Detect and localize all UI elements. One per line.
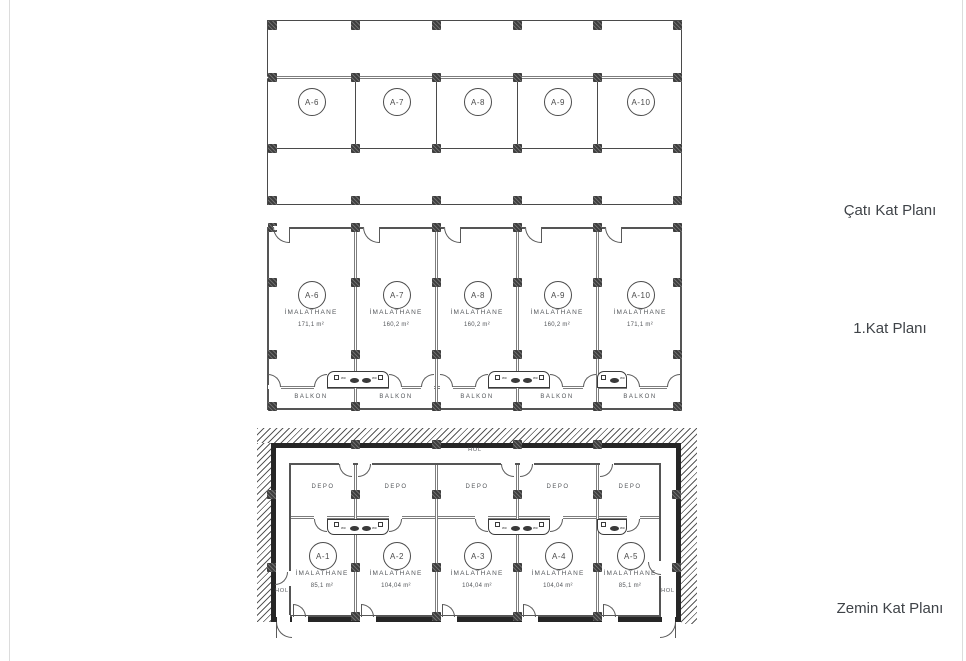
column-marker — [432, 278, 441, 287]
unit-circle: A-6 — [298, 88, 326, 116]
door-opening — [277, 615, 290, 622]
column-marker — [673, 21, 682, 30]
unit-id-label: A-9 — [551, 291, 565, 300]
column-marker — [673, 402, 682, 411]
column-marker — [351, 21, 360, 30]
column-marker — [351, 278, 360, 287]
column-marker — [513, 144, 522, 153]
column-marker — [513, 196, 522, 205]
wc-label: wc — [533, 376, 538, 380]
room-type-label: İMALATHANE — [595, 310, 685, 317]
sink-icon — [539, 375, 544, 380]
wc-label: wc — [620, 376, 625, 380]
hall-label: HOL — [262, 589, 302, 595]
area-label: 104,04 m² — [432, 583, 522, 589]
wc-label: wc — [372, 376, 377, 380]
column-marker — [593, 73, 602, 82]
page-edge-left — [9, 0, 10, 661]
unit-circle: A-7 — [383, 281, 411, 309]
unit-circle: A-10 — [627, 88, 655, 116]
toilet-icon — [362, 378, 371, 383]
balcony-label: BALKON — [595, 394, 685, 400]
door-leaf — [460, 227, 461, 243]
balcony-label: BALKON — [351, 394, 441, 400]
column-marker — [593, 21, 602, 30]
column-marker — [593, 490, 602, 499]
column-marker — [593, 440, 602, 449]
column-marker — [432, 612, 441, 621]
column-marker — [268, 278, 277, 287]
area-label: 171,1 m² — [266, 322, 356, 328]
unit-id-label: A-9 — [551, 98, 565, 107]
room-type-label: İMALATHANE — [266, 310, 356, 317]
hall-label: HOL — [648, 589, 688, 595]
door-leaf — [541, 227, 542, 243]
wc-module: wc wc — [327, 519, 389, 535]
column-marker — [432, 440, 441, 449]
roof-upper-wall — [267, 76, 682, 79]
unit-circle: A-9 — [544, 281, 572, 309]
unit-id-label: A-8 — [471, 291, 485, 300]
balcony-label: BALKON — [512, 394, 602, 400]
wc-label: wc — [341, 376, 346, 380]
column-marker — [593, 144, 602, 153]
column-marker — [513, 612, 522, 621]
sink-icon — [334, 522, 339, 527]
hall-label: HOL — [455, 448, 495, 454]
roof-lower-line — [267, 148, 682, 149]
wc-module: wc wc — [488, 371, 550, 388]
room-type-label: İMALATHANE — [351, 310, 441, 317]
door-leaf — [523, 604, 524, 617]
toilet-icon — [511, 526, 520, 531]
column-marker — [268, 21, 277, 30]
column-marker — [351, 440, 360, 449]
room-type-label: İMALATHANE — [585, 571, 675, 578]
door-leaf — [289, 227, 290, 243]
door-leaf — [379, 227, 380, 243]
roof-wall — [436, 78, 437, 148]
column-marker — [268, 196, 277, 205]
room-type-label: İMALATHANE — [512, 310, 602, 317]
storage-label: DEPO — [351, 484, 441, 490]
column-marker — [513, 490, 522, 499]
balcony-label: BALKON — [266, 394, 356, 400]
door-leaf — [603, 604, 604, 617]
door-leaf — [293, 604, 294, 617]
wc-module: wc — [597, 371, 627, 388]
toilet-icon — [610, 526, 619, 531]
column-marker — [513, 402, 522, 411]
area-label: 160,2 m² — [351, 322, 441, 328]
roof-wall — [597, 78, 598, 148]
toilet-icon — [511, 378, 520, 383]
unit-id-label: A-10 — [632, 291, 651, 300]
column-marker — [268, 402, 277, 411]
column-marker — [513, 440, 522, 449]
storage-label: DEPO — [585, 484, 675, 490]
unit-id-label: A-1 — [316, 552, 330, 561]
door-leaf — [675, 622, 676, 638]
unit-circle: A-3 — [464, 542, 492, 570]
room-type-label: İMALATHANE — [351, 571, 441, 578]
area-label: 171,1 m² — [595, 322, 685, 328]
toilet-icon — [350, 378, 359, 383]
balcony-label: BALKON — [432, 394, 522, 400]
column-marker — [673, 196, 682, 205]
column-marker — [432, 490, 441, 499]
column-marker — [432, 223, 441, 232]
door-arc — [276, 622, 292, 638]
unit-circle: A-9 — [544, 88, 572, 116]
column-marker — [351, 612, 360, 621]
unit-id-label: A-7 — [390, 98, 404, 107]
unit-id-label: A-2 — [390, 552, 404, 561]
sink-icon — [601, 375, 606, 380]
sink-icon — [334, 375, 339, 380]
unit-circle: A-5 — [617, 542, 645, 570]
column-marker — [673, 223, 682, 232]
area-label: 160,2 m² — [512, 322, 602, 328]
wc-label: wc — [372, 526, 377, 530]
wall-hatch — [257, 443, 271, 622]
unit-id-label: A-3 — [471, 552, 485, 561]
architectural-drawing: A-6 A-7 A-8 A-9 A-10 — [0, 0, 966, 661]
column-marker — [432, 402, 441, 411]
toilet-icon — [610, 378, 619, 383]
toilet-icon — [350, 526, 359, 531]
column-marker — [351, 144, 360, 153]
door-leaf — [276, 622, 277, 638]
unit-circle: A-1 — [309, 542, 337, 570]
unit-id-label: A-6 — [305, 291, 319, 300]
column-marker — [351, 196, 360, 205]
unit-id-label: A-10 — [632, 98, 651, 107]
column-marker — [351, 490, 360, 499]
column-marker — [267, 563, 276, 572]
unit-circle: A-10 — [627, 281, 655, 309]
door-leaf — [442, 604, 443, 617]
column-marker — [432, 21, 441, 30]
sink-icon — [495, 375, 500, 380]
first-plan-title: 1.Kat Planı — [790, 320, 966, 337]
door-opening — [662, 615, 675, 622]
column-marker — [513, 73, 522, 82]
column-marker — [432, 144, 441, 153]
unit-id-label: A-5 — [624, 552, 638, 561]
unit-id-label: A-7 — [390, 291, 404, 300]
column-marker — [513, 278, 522, 287]
sink-icon — [378, 522, 383, 527]
sink-icon — [539, 522, 544, 527]
unit-circle: A-2 — [383, 542, 411, 570]
unit-id-label: A-6 — [305, 98, 319, 107]
column-marker — [593, 402, 602, 411]
area-label: 104,04 m² — [351, 583, 441, 589]
wc-label: wc — [533, 526, 538, 530]
toilet-icon — [523, 526, 532, 531]
column-marker — [672, 490, 681, 499]
wc-label: wc — [620, 526, 625, 530]
room-type-label: İMALATHANE — [432, 571, 522, 578]
sink-icon — [495, 522, 500, 527]
wc-label: wc — [502, 376, 507, 380]
column-marker — [593, 350, 602, 359]
wc-label: wc — [502, 526, 507, 530]
toilet-icon — [362, 526, 371, 531]
roof-wall — [355, 78, 356, 148]
column-marker — [673, 278, 682, 287]
column-marker — [593, 278, 602, 287]
ground-plan-title: Zemin Kat Planı — [790, 600, 966, 617]
column-marker — [593, 223, 602, 232]
sink-icon — [601, 522, 606, 527]
unit-circle: A-8 — [464, 88, 492, 116]
wc-module: wc wc — [488, 519, 550, 535]
toilet-icon — [523, 378, 532, 383]
column-marker — [351, 402, 360, 411]
unit-id-label: A-4 — [552, 552, 566, 561]
unit-circle: A-4 — [545, 542, 573, 570]
roof-plan-title: Çatı Kat Planı — [790, 202, 966, 219]
area-label: 160,2 m² — [432, 322, 522, 328]
wc-module: wc wc — [327, 371, 389, 388]
column-marker — [268, 350, 277, 359]
wall-hatch — [681, 443, 697, 624]
column-marker — [673, 73, 682, 82]
unit-circle: A-7 — [383, 88, 411, 116]
column-marker — [673, 350, 682, 359]
column-marker — [268, 73, 277, 82]
wall-hatch — [257, 428, 697, 443]
wc-module: wc — [597, 519, 627, 535]
unit-wall — [435, 229, 438, 408]
column-marker — [351, 350, 360, 359]
column-marker — [268, 144, 277, 153]
roof-wall — [517, 78, 518, 148]
door-leaf — [621, 227, 622, 243]
column-marker — [593, 612, 602, 621]
storage-label: DEPO — [432, 484, 522, 490]
area-label: 85,1 m² — [585, 583, 675, 589]
column-marker — [432, 73, 441, 82]
door-leaf — [361, 604, 362, 617]
column-marker — [351, 223, 360, 232]
column-marker — [432, 350, 441, 359]
room-type-label: İMALATHANE — [432, 310, 522, 317]
door-arc — [660, 622, 676, 638]
unit-circle: A-6 — [298, 281, 326, 309]
sink-icon — [378, 375, 383, 380]
column-marker — [593, 196, 602, 205]
column-marker — [673, 144, 682, 153]
column-marker — [513, 350, 522, 359]
unit-id-label: A-8 — [471, 98, 485, 107]
column-marker — [513, 21, 522, 30]
column-marker — [513, 223, 522, 232]
column-marker — [267, 490, 276, 499]
wc-label: wc — [341, 526, 346, 530]
unit-circle: A-8 — [464, 281, 492, 309]
column-marker — [351, 73, 360, 82]
column-marker — [432, 196, 441, 205]
